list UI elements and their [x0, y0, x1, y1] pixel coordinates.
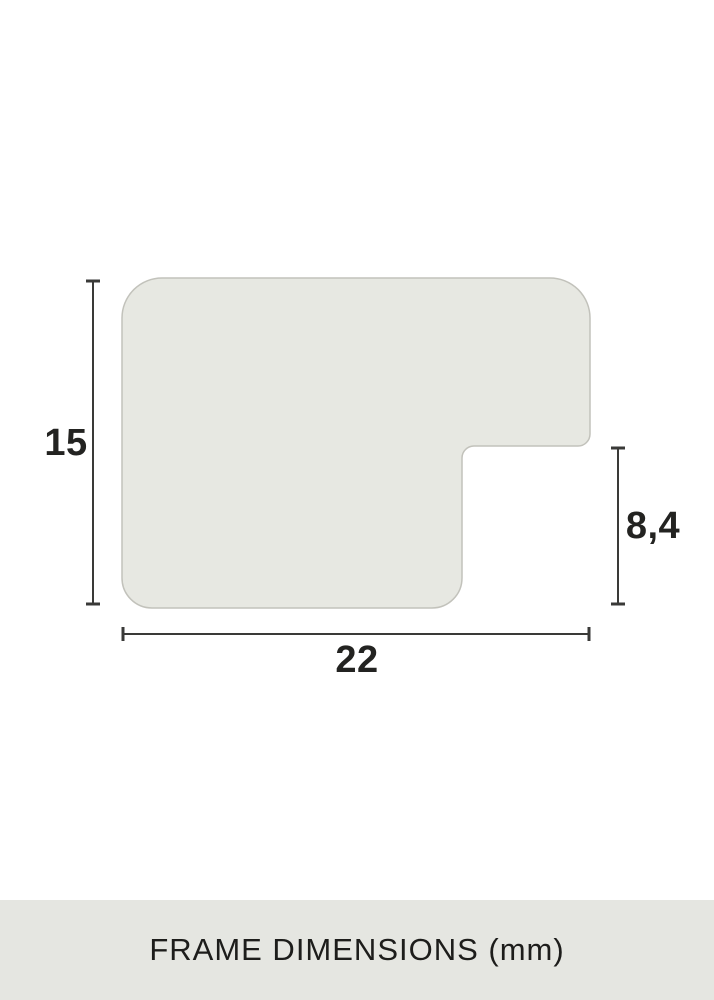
height-dimension-value: 15 — [38, 424, 94, 462]
footer-caption-bar: FRAME DIMENSIONS (mm) — [0, 900, 714, 1000]
width-dimension-value: 22 — [307, 641, 407, 679]
rabbet-dimension-value: 8,4 — [613, 507, 693, 545]
frame-profile-shape — [122, 278, 590, 608]
frame-dimensions-diagram: 15 22 8,4 FRAME DIMENSIONS (mm) — [0, 0, 714, 1000]
footer-caption-text: FRAME DIMENSIONS (mm) — [149, 932, 564, 968]
profile-diagram-canvas — [0, 0, 714, 1000]
